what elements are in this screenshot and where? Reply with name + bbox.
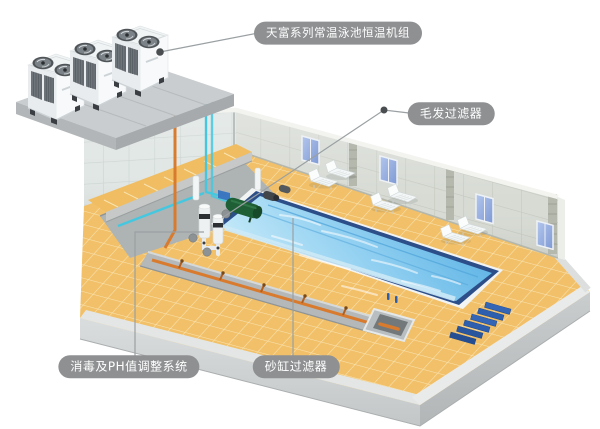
callout-disinfection-ph-system-label: 消毒及PH值调整系统 [70,359,187,373]
leader-dot-hair-filter [381,107,388,114]
leader-dot-heat-pump [156,48,164,56]
callout-heat-pump-unit-label: 天富系列常温泳池恒温机组 [266,26,410,40]
callout-hair-filter: 毛发过滤器 [408,102,495,125]
pool-system-diagram: 天富系列常温泳池恒温机组 毛发过滤器 消毒及PH值调整系统 砂缸过滤器 [0,0,600,429]
callout-sand-filter: 砂缸过滤器 [253,355,340,378]
callout-disinfection-ph-system: 消毒及PH值调整系统 [58,355,199,378]
callout-sand-filter-label: 砂缸过滤器 [265,359,328,373]
callout-heat-pump-unit: 天富系列常温泳池恒温机组 [254,22,422,45]
callout-hair-filter-label: 毛发过滤器 [420,106,483,120]
